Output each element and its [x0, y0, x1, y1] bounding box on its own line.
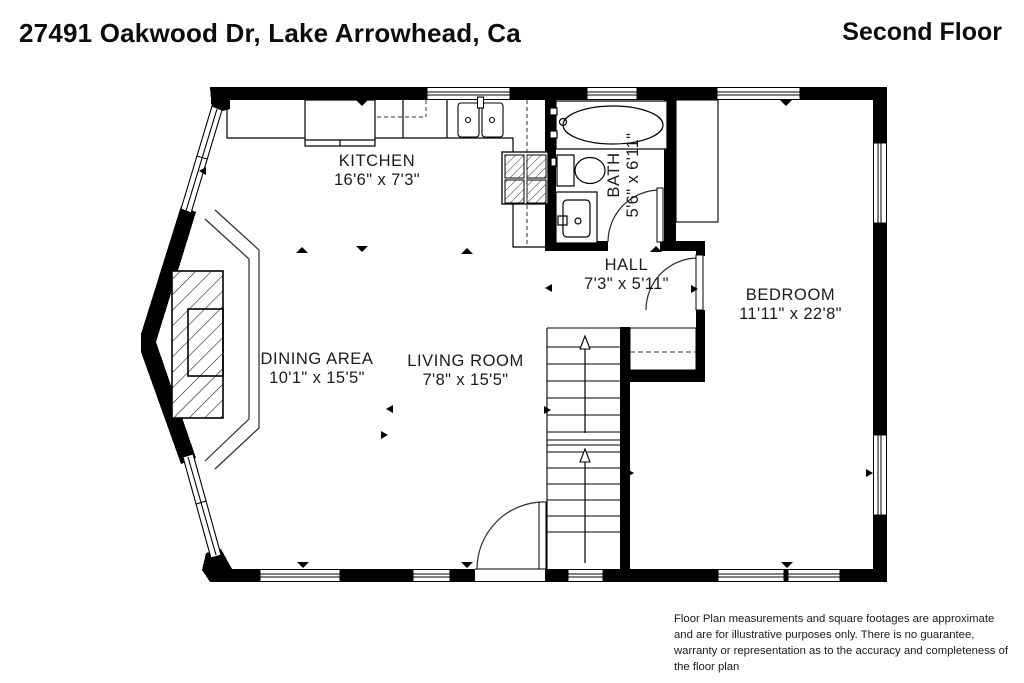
kitchen-name: KITCHEN [297, 152, 457, 171]
bedroom-dims: 11'11" x 22'8" [708, 305, 873, 324]
bedroom-name: BEDROOM [708, 286, 873, 305]
floor-plan-page: 27491 Oakwood Dr, Lake Arrowhead, Ca Sec… [0, 0, 1024, 683]
hall-dims: 7'3" x 5'11" [564, 275, 689, 294]
door-opening [475, 568, 545, 582]
stove [502, 152, 548, 204]
window-icon [260, 570, 340, 582]
kitchen-dims: 16'6" x 7'3" [297, 171, 457, 190]
hall-closet [630, 328, 696, 370]
marker-right-icon [866, 469, 873, 477]
marker-up-icon [296, 247, 308, 253]
window-icon [568, 570, 603, 582]
living-name: LIVING ROOM [383, 352, 548, 371]
marker-down-icon [781, 562, 793, 568]
window-icon [718, 570, 784, 582]
living-room-door [477, 502, 546, 569]
marker-up-icon [461, 248, 473, 254]
window-icon [413, 570, 450, 582]
kitchen-sink [458, 97, 503, 137]
living-dims: 7'8" x 15'5" [383, 371, 548, 390]
floor-plan-canvas [0, 0, 1024, 683]
toilet [551, 155, 605, 186]
bath-name: BATH [605, 110, 624, 240]
window-icon [587, 88, 637, 100]
window-icon [874, 143, 887, 223]
angled-window-upper [181, 106, 222, 213]
window-icon [788, 570, 840, 582]
fireplace [172, 271, 223, 418]
marker-left-icon [386, 405, 393, 413]
angled-window-lower [183, 454, 221, 558]
marker-down-icon [461, 562, 473, 568]
stairs [547, 328, 620, 570]
refrigerator [305, 100, 375, 146]
marker-down-icon [780, 100, 792, 106]
hall-label: HALL 7'3" x 5'11" [564, 256, 689, 294]
disclaimer-text: Floor Plan measurements and square foota… [674, 611, 1014, 675]
marker-down-icon [356, 246, 368, 252]
hall-name: HALL [564, 256, 689, 275]
marker-right-icon [381, 431, 388, 439]
vanity-sink [556, 192, 597, 243]
dining-dims: 10'1" x 15'5" [237, 369, 397, 388]
marker-down-icon [297, 562, 309, 568]
kitchen-label: KITCHEN 16'6" x 7'3" [297, 152, 457, 190]
marker-left-icon [545, 284, 552, 292]
window-icon [427, 88, 510, 100]
dining-name: DINING AREA [237, 350, 397, 369]
marker-right-icon [627, 469, 634, 477]
living-label: LIVING ROOM 7'8" x 15'5" [383, 352, 548, 390]
bath-dims: 5'6" x 6'11" [624, 110, 643, 240]
dining-label: DINING AREA 10'1" x 15'5" [237, 350, 397, 388]
stairs-up-arrow [580, 336, 590, 563]
bedroom-label: BEDROOM 11'11" x 22'8" [708, 286, 873, 324]
window-icon [717, 88, 800, 100]
linen-closet [676, 100, 718, 222]
window-icon [874, 435, 887, 515]
